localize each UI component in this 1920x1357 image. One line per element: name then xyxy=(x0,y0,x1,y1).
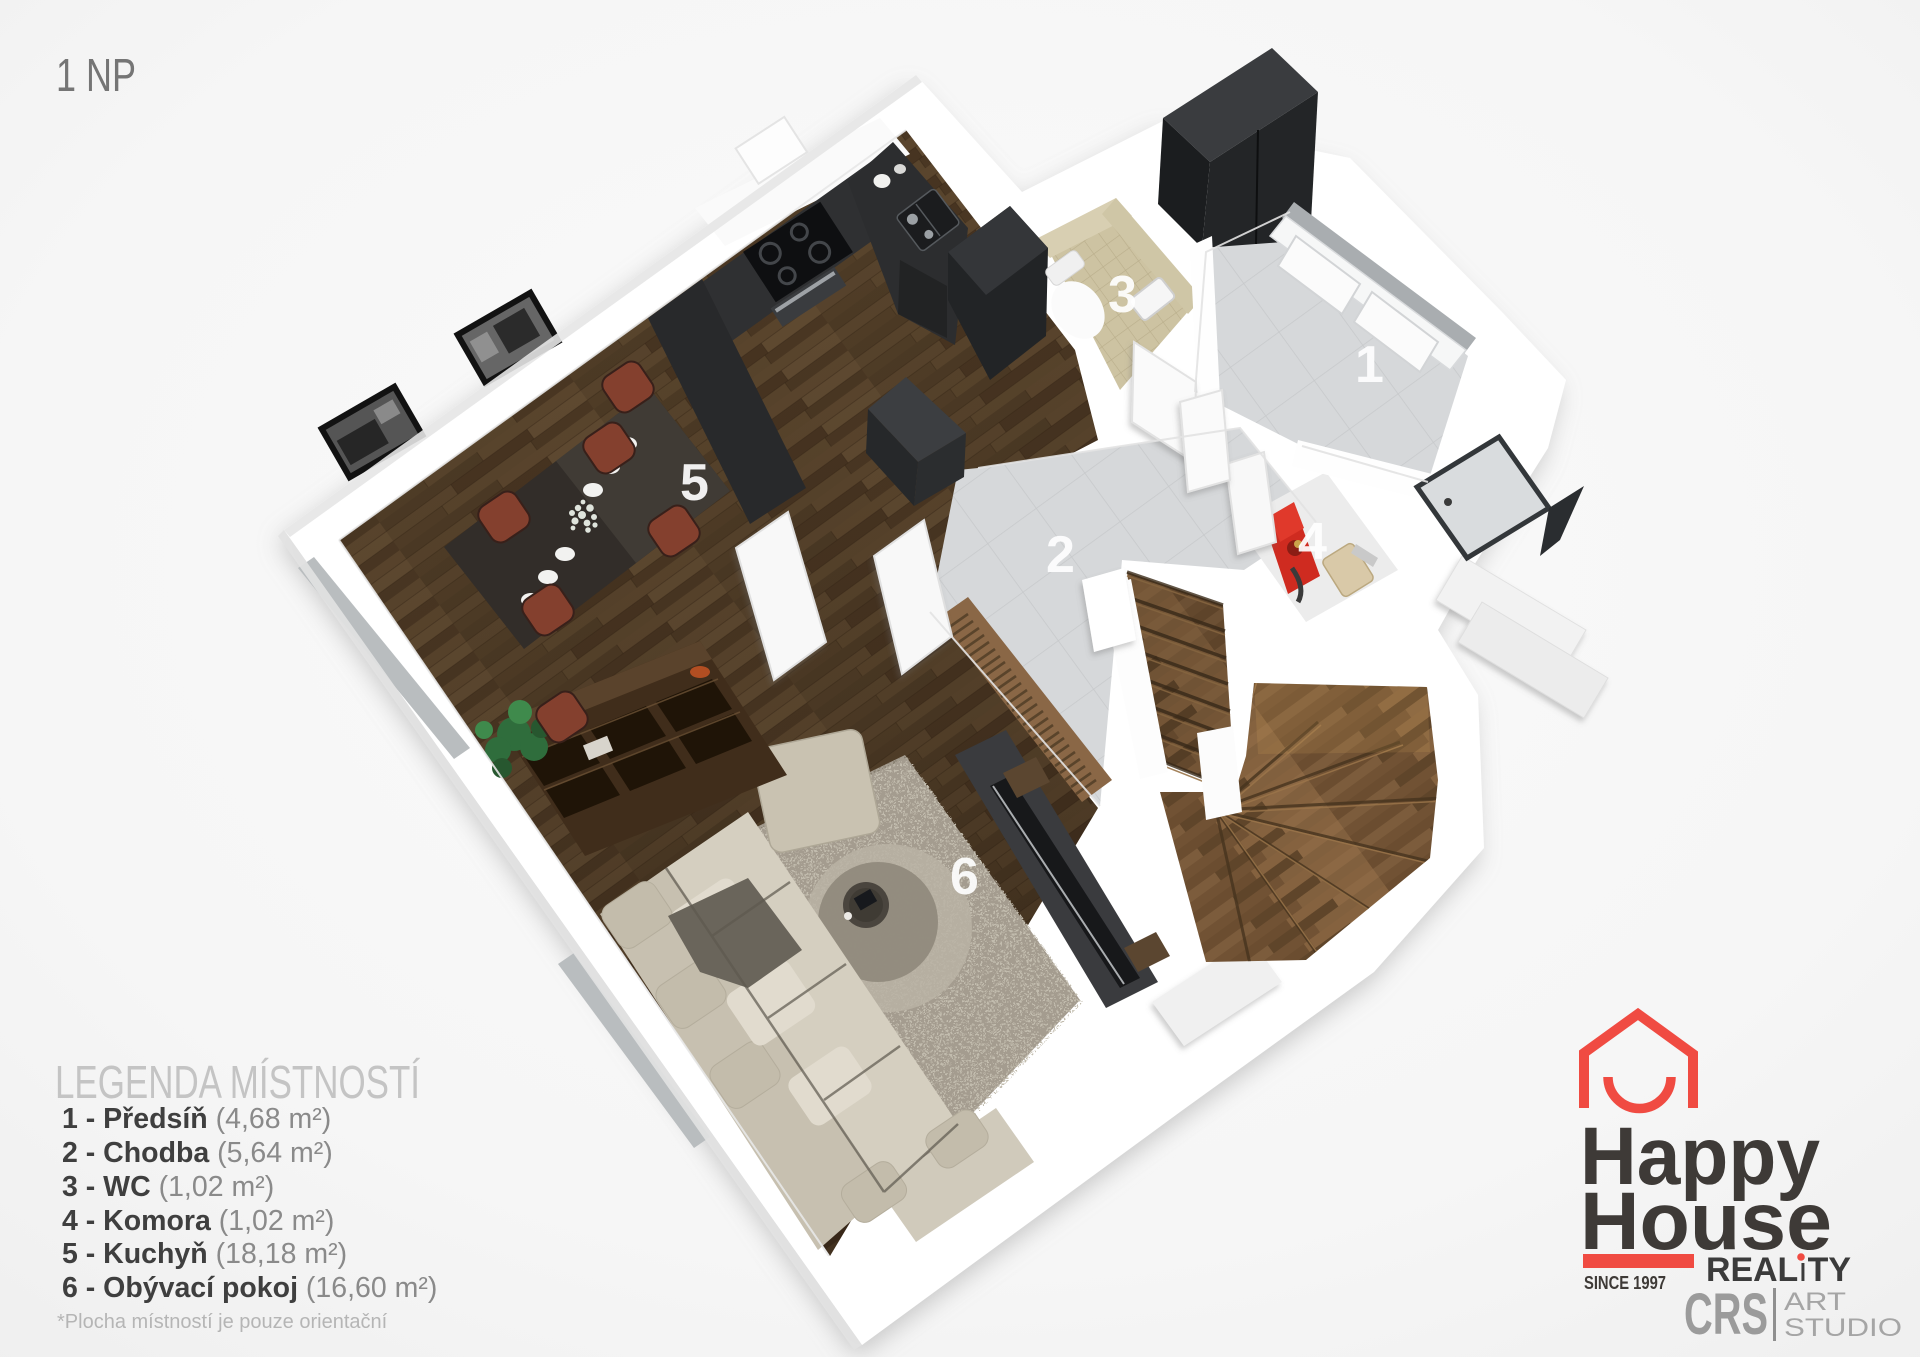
svg-text:2 - Chodba (5,64 m²): 2 - Chodba (5,64 m²) xyxy=(62,1137,333,1169)
svg-text:6 - Obývací pokoj (16,60 m²): 6 - Obývací pokoj (16,60 m²) xyxy=(62,1272,437,1304)
svg-text:4 - Komora (1,02 m²): 4 - Komora (1,02 m²) xyxy=(62,1205,334,1237)
svg-text:6: 6 xyxy=(950,848,979,906)
svg-text:*Plocha místností je pouze ori: *Plocha místností je pouze orientační xyxy=(57,1311,388,1333)
svg-text:LEGENDA MÍSTNOSTÍ: LEGENDA MÍSTNOSTÍ xyxy=(55,1056,420,1108)
svg-text:2: 2 xyxy=(1046,526,1075,584)
svg-text:SINCE 1997: SINCE 1997 xyxy=(1584,1273,1666,1293)
svg-text:5: 5 xyxy=(680,454,709,512)
svg-text:3: 3 xyxy=(1108,266,1137,324)
svg-text:CRS: CRS xyxy=(1684,1282,1768,1347)
svg-text:3 - WC (1,02 m²): 3 - WC (1,02 m²) xyxy=(62,1171,274,1203)
svg-text:1 NP: 1 NP xyxy=(56,49,136,101)
svg-text:1: 1 xyxy=(1355,336,1384,394)
svg-text:4: 4 xyxy=(1298,513,1327,571)
svg-text:ART: ART xyxy=(1784,1288,1846,1316)
svg-text:1 - Předsíň (4,68 m²): 1 - Předsíň (4,68 m²) xyxy=(62,1103,331,1135)
svg-text:STUDIO: STUDIO xyxy=(1784,1314,1902,1342)
svg-text:5 - Kuchyň (18,18 m²): 5 - Kuchyň (18,18 m²) xyxy=(62,1238,347,1270)
